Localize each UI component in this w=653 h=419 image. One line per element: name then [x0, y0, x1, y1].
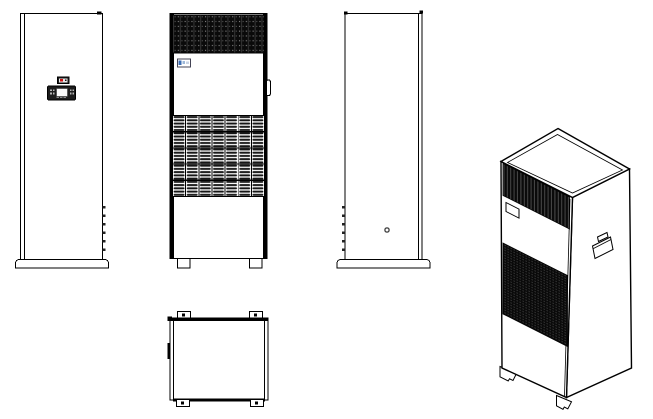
mounting-tab-bottom-right: [251, 400, 264, 407]
status-led: [60, 79, 63, 82]
controller-screen: [57, 89, 68, 97]
cabinet-unit-drawing: [0, 0, 653, 419]
cabinet-body: [21, 14, 103, 260]
mounting-tab-top-right: [250, 312, 263, 319]
brand-logo: [178, 59, 191, 67]
top-exhaust-grille: [173, 15, 265, 53]
right-side-face: [567, 169, 632, 398]
corner-mark: [168, 317, 173, 322]
top-clip-right: [420, 11, 424, 14]
side-handle: [267, 80, 271, 96]
view-front-controller: [16, 12, 109, 269]
mounting-tab-top-left: [178, 312, 191, 319]
status-indicator: [58, 77, 70, 84]
foot-right: [250, 259, 263, 269]
controller-panel: [48, 86, 76, 100]
top-edge-band: [170, 318, 268, 321]
mounting-tab-bottom-left: [177, 400, 190, 407]
top-clip-left: [344, 12, 348, 15]
view-rear-panel: [337, 11, 430, 269]
top-clip: [97, 12, 102, 15]
foot-front-center: [557, 396, 572, 410]
pedestal-base: [337, 260, 430, 269]
view-front-grilles: [170, 14, 270, 269]
cabinet-outline: [170, 318, 268, 400]
controller-label-row: [57, 97, 67, 98]
side-connector-tab: [168, 343, 171, 359]
technical-drawing-canvas: [0, 0, 653, 419]
cabinet-body: [345, 14, 422, 260]
intake-louver-grille: [173, 116, 265, 197]
view-isometric: [500, 129, 632, 410]
pedestal-base: [16, 260, 109, 269]
view-top: [168, 312, 269, 407]
foot-left: [178, 259, 191, 269]
